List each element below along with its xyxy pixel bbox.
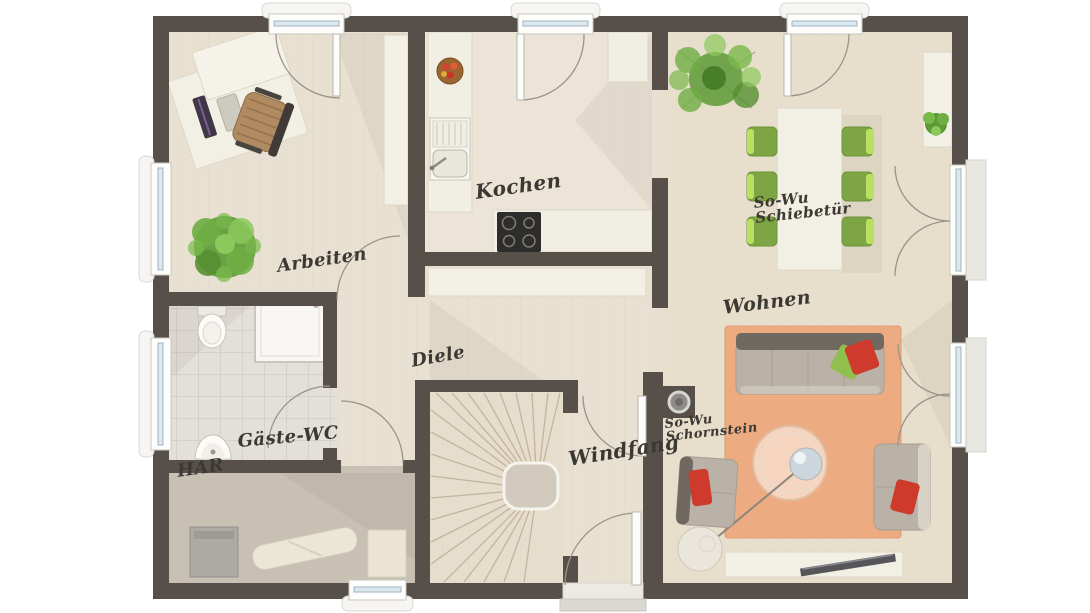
side-table [678, 527, 722, 571]
armchair-left [676, 456, 739, 528]
stove [497, 212, 541, 252]
wall-stair-west [415, 380, 430, 583]
winder-staircase [430, 392, 563, 583]
window-arbeiten-top [262, 3, 351, 34]
dining-chairs-left [747, 127, 777, 246]
entrance-mat [560, 599, 646, 611]
armchair-right [874, 444, 930, 530]
wall-kitchen-east-lower [652, 178, 668, 308]
shower [255, 298, 325, 362]
stair-handrail [504, 463, 558, 509]
wardrobe [384, 35, 408, 205]
kitchen-sink [430, 118, 470, 180]
tv-lowboard [725, 552, 903, 577]
wall-wc-east-upper [323, 292, 337, 388]
wall-stair-north [415, 380, 578, 392]
glass-vase [790, 448, 822, 480]
washing-machine [190, 527, 238, 577]
window-wc-left [139, 331, 171, 457]
fruit-bowl [437, 58, 463, 84]
wall-wc-north [169, 292, 337, 306]
fridge-cabinet [608, 32, 648, 82]
wall-kitchen-south [418, 252, 668, 266]
sofa [736, 333, 884, 394]
window-dining-top [780, 3, 869, 34]
storage-box [368, 530, 406, 577]
window-har-bottom [342, 580, 413, 611]
wall-kitchen-east-upper [652, 32, 668, 90]
floorplan-stage: Arbeiten Kochen Wohnen Diele Windfang Gä… [0, 0, 1090, 613]
toilet [198, 306, 226, 348]
window-arbeiten-left [139, 156, 171, 282]
floorplan-drawing [0, 0, 1090, 613]
window-kochen-top [511, 3, 600, 34]
hall-sideboard [428, 268, 646, 296]
wall-stair-east-upper [563, 392, 578, 413]
